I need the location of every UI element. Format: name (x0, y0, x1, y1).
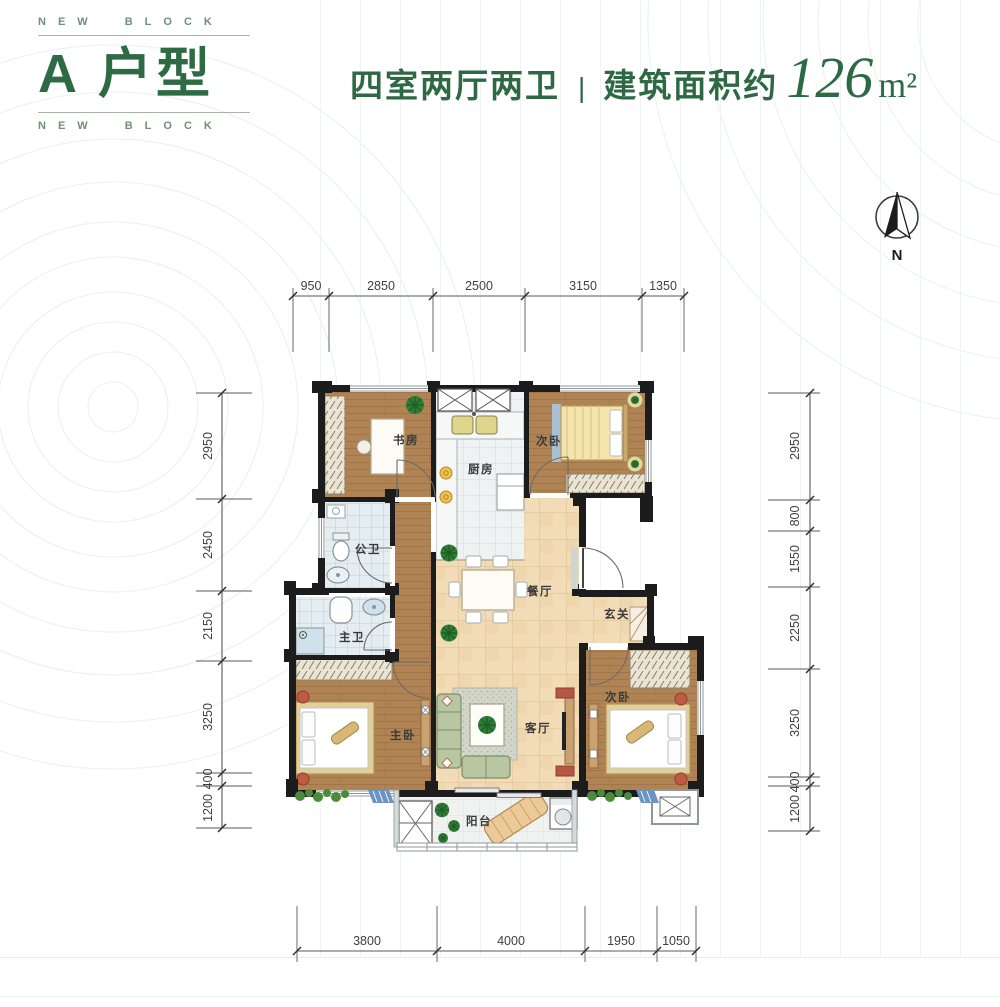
room-label-kitchen: 厨房 (468, 462, 494, 476)
compass: N (876, 192, 918, 264)
dim-label: 400 (788, 772, 802, 793)
ac-platform (652, 790, 698, 824)
dim-label: 400 (201, 769, 215, 790)
bedroom-right-window (697, 681, 704, 735)
dim-left: 2950 2450 2150 3250 400 1200 (196, 389, 252, 832)
tv (562, 712, 566, 750)
dim-label: 1200 (201, 794, 215, 822)
study-window (350, 385, 428, 392)
dim-right: 2950 800 1550 2250 3250 400 1200 (768, 389, 820, 835)
room-label-balcony: 阳台 (466, 814, 492, 828)
bedroom-top-window-right (645, 440, 652, 482)
dim-bottom: 3800 4000 1950 1050 (293, 906, 700, 962)
bedroom-top-window-top (560, 385, 640, 392)
bath-public-window (318, 518, 325, 558)
room-label-bath-master: 主卫 (339, 630, 365, 644)
room-label-master: 主卧 (390, 728, 416, 742)
room-label-study: 书房 (393, 433, 419, 447)
room-label-bath-public: 公卫 (355, 543, 381, 556)
dim-label: 3250 (788, 709, 802, 737)
dim-label: 950 (301, 279, 322, 293)
dim-label: 2850 (367, 279, 395, 293)
dim-label: 4000 (497, 934, 525, 948)
room-label-living: 客厅 (524, 721, 551, 735)
dim-top: 950 2850 2500 3150 1350 (289, 279, 688, 352)
plant-icon (406, 396, 424, 414)
room-label-bedroom-right: 次卧 (605, 690, 631, 704)
dim-label: 1950 (607, 934, 635, 948)
dim-label: 1350 (649, 279, 677, 293)
room-label-entry: 玄关 (604, 607, 630, 621)
dim-label: 1050 (662, 934, 690, 948)
dim-label: 3250 (201, 703, 215, 731)
room-label-dining: 餐厅 (526, 584, 553, 598)
dim-label: 2950 (788, 432, 802, 460)
dim-label: 2150 (201, 612, 215, 640)
dim-label: 3800 (353, 934, 381, 948)
room-label-bedroom-top: 次卧 (536, 434, 562, 448)
floorplan: 书房 厨房 次卧 公卫 主卫 餐厅 玄关 主卧 客厅 次卧 阳台 950 285… (0, 0, 1000, 1007)
fridge (497, 474, 524, 510)
dim-label: 2250 (788, 614, 802, 642)
dim-label: 1200 (788, 795, 802, 823)
dim-label: 2950 (201, 432, 215, 460)
dim-label: 800 (788, 506, 802, 527)
dim-label: 2450 (201, 531, 215, 559)
dining-upper-floor (524, 498, 579, 560)
dim-label: 1550 (788, 545, 802, 573)
dining-table (462, 570, 514, 610)
compass-north-label: N (892, 247, 903, 264)
dim-label: 2500 (465, 279, 493, 293)
dim-label: 3150 (569, 279, 597, 293)
corridor-floor (395, 502, 431, 660)
